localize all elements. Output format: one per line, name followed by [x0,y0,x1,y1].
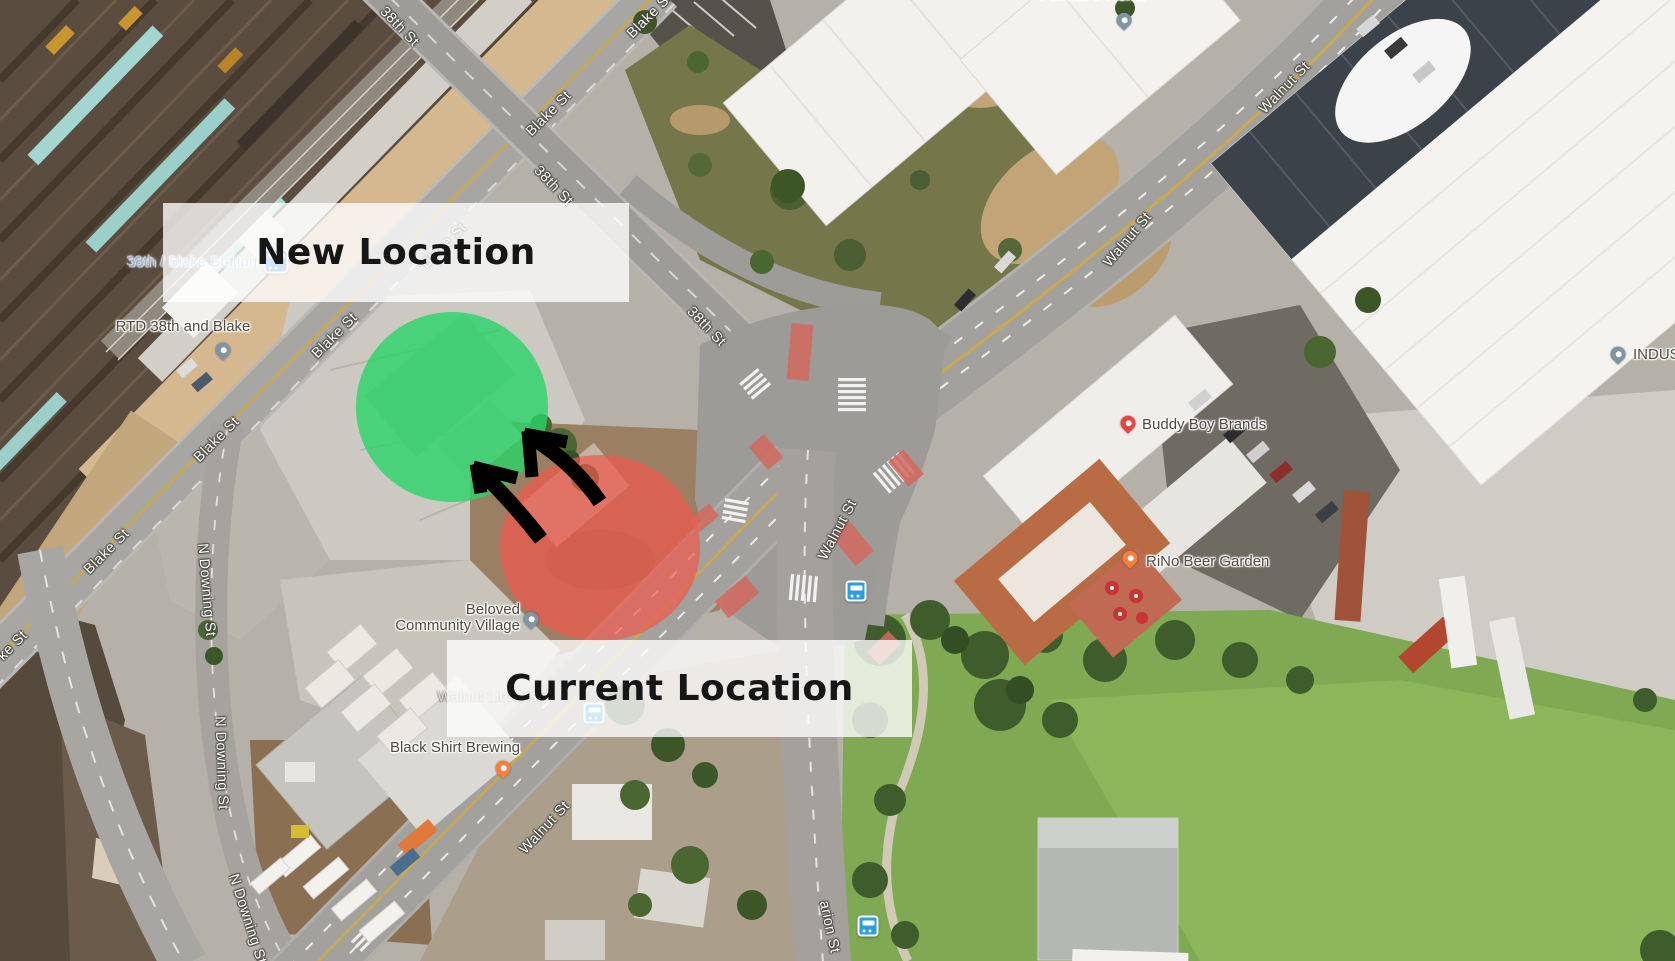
poi-label-beloved-line1: Beloved [466,601,520,618]
poi-label-industry-cut: INDUS [1633,347,1675,363]
new-location-circle [356,312,548,502]
new-location-label: New Location [256,235,536,271]
poi-label-black-shirt: Black Shirt Brewing [390,740,520,756]
poi-label-rino: RiNo Beer Garden [1146,554,1269,570]
satellite-map-viewport[interactable]: 38th St Blake St Blake St 38th St Blake … [0,0,1675,961]
poi-label-buddy-boy: Buddy Boy Brands [1142,417,1266,433]
bus-stop-icon[interactable] [846,581,867,602]
bus-stop-icon[interactable] [858,916,879,937]
poi-label-furniture-works: Furniture Works [1040,0,1146,4]
poi-label-rtd: RTD 38th and Blake [116,319,251,335]
satellite-base-art [0,0,1675,961]
current-location-label: Current Location [505,671,854,707]
new-location-callout: New Location [163,203,629,302]
current-location-callout: Current Location [447,640,912,737]
poi-label-beloved: BelovedCommunity Village [395,602,520,634]
street-label-n-downing-st: N Downing St [212,716,230,810]
poi-label-beloved-line2: Community Village [395,617,520,634]
